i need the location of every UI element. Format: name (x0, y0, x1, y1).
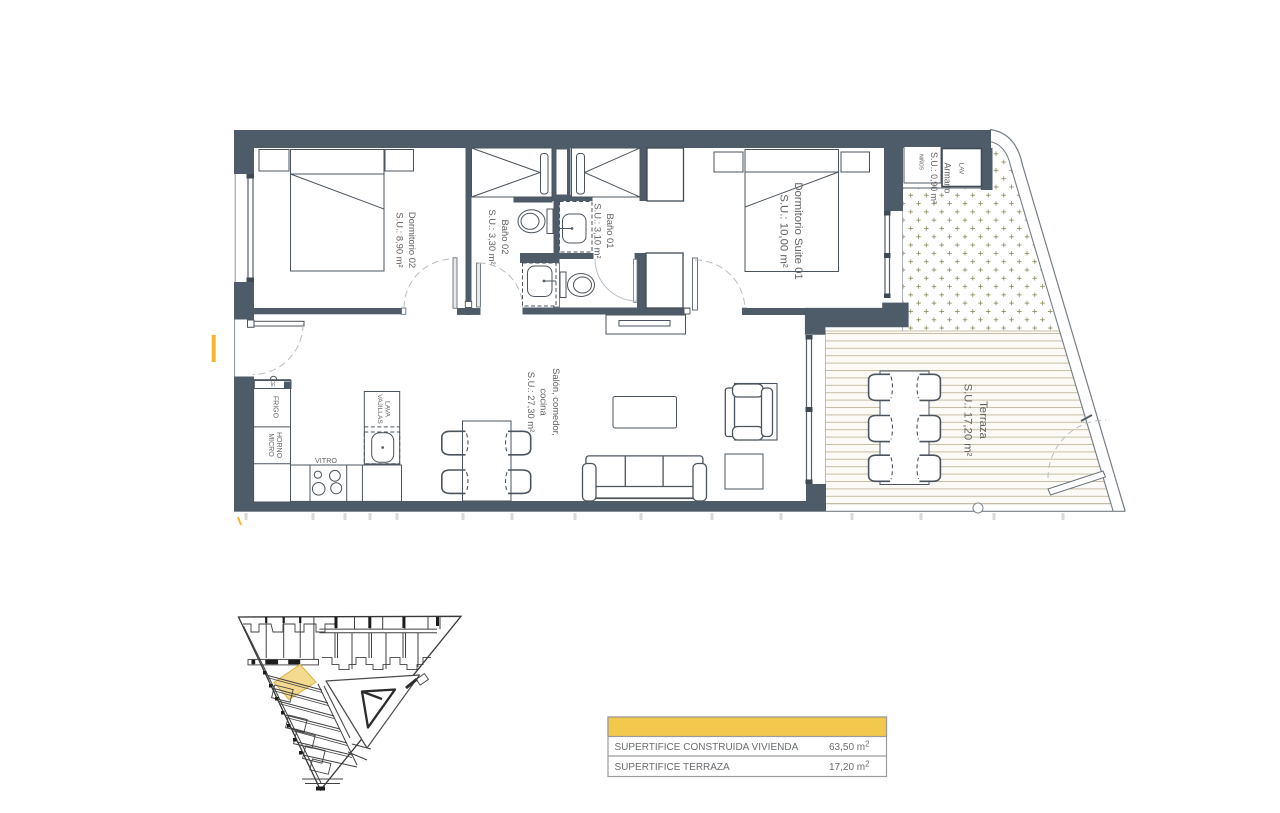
svg-text:MICRO: MICRO (267, 433, 274, 457)
svg-text:Baño 01: Baño 01 (605, 214, 616, 249)
svg-text:Baño 02: Baño 02 (500, 220, 511, 255)
svg-text:FRIGO: FRIGO (272, 396, 279, 419)
svg-text:Dormitorio Suite 01: Dormitorio Suite 01 (792, 182, 804, 280)
svg-text:NIÑOS: NIÑOS (918, 154, 925, 171)
svg-text:cocina: cocina (539, 388, 550, 416)
svg-text:CE: CE (269, 379, 275, 387)
svg-text:Armario: Armario (943, 163, 953, 194)
svg-text:S.U.: 0,90 m²: S.U.: 0,90 m² (929, 152, 939, 204)
svg-text:SUPERTIFICE CONSTRUIDA VIVIEND: SUPERTIFICE CONSTRUIDA VIVIENDA (615, 742, 799, 753)
svg-text:S.U.: 10,00 m²: S.U.: 10,00 m² (778, 194, 790, 268)
svg-text:LAV: LAV (958, 163, 965, 175)
svg-text:Salón, comedor,: Salón, comedor, (551, 368, 562, 436)
svg-text:LAVA: LAVA (384, 401, 391, 417)
svg-text:17,20 m2: 17,20 m2 (829, 760, 870, 774)
svg-text:VITRO: VITRO (315, 456, 337, 465)
svg-text:Dormitorio 02: Dormitorio 02 (407, 212, 418, 268)
svg-text:VAJILLAS: VAJILLAS (376, 394, 383, 424)
svg-text:S.U.: 27,30 m²: S.U.: 27,30 m² (526, 372, 537, 432)
svg-text:HORNO: HORNO (275, 432, 282, 459)
svg-text:S.U.: 3,10 m²: S.U.: 3,10 m² (593, 203, 604, 258)
svg-text:S.U.: 3,30 m²: S.U.: 3,30 m² (487, 209, 498, 264)
svg-text:SUPERTIFICE TERRAZA: SUPERTIFICE TERRAZA (615, 762, 731, 773)
svg-text:S.U.: 17,20 m²: S.U.: 17,20 m² (962, 384, 974, 457)
svg-text:Terraza: Terraza (977, 401, 989, 439)
svg-text:63,50 m2: 63,50 m2 (829, 740, 870, 754)
svg-text:S.U.: 8,90 m²: S.U.: 8,90 m² (395, 212, 406, 267)
